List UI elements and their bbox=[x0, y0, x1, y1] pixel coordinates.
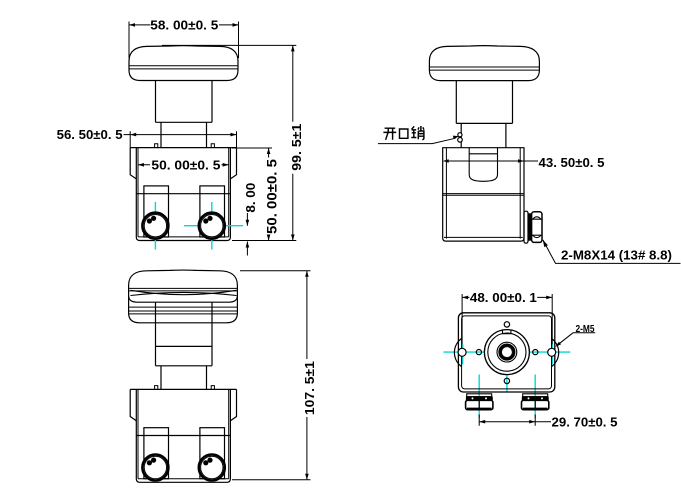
svg-text:99. 5±1: 99. 5±1 bbox=[289, 124, 304, 171]
svg-text:29. 70±0. 5: 29. 70±0. 5 bbox=[552, 415, 618, 430]
svg-text:107. 5±1: 107. 5±1 bbox=[302, 361, 317, 415]
svg-text:58. 00±0. 5: 58. 00±0. 5 bbox=[150, 18, 218, 33]
svg-text:43. 50±0. 5: 43. 50±0. 5 bbox=[539, 155, 605, 170]
svg-text:8. 00: 8. 00 bbox=[243, 183, 258, 213]
svg-text:48. 00±0. 1: 48. 00±0. 1 bbox=[470, 290, 537, 305]
svg-text:56. 50±0. 5: 56. 50±0. 5 bbox=[57, 127, 123, 142]
svg-text:50. 00±0. 5: 50. 00±0. 5 bbox=[265, 158, 280, 234]
svg-text:2-M8X14 (13# 8.8): 2-M8X14 (13# 8.8) bbox=[561, 248, 672, 263]
svg-text:50. 00±0. 5: 50. 00±0. 5 bbox=[151, 158, 220, 173]
